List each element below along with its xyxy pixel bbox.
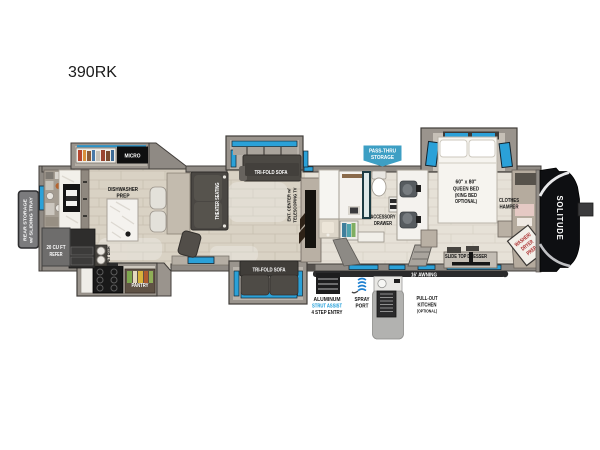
svg-text:HAMPER: HAMPER	[500, 205, 519, 211]
svg-text:w/ SLIDING TRAY: w/ SLIDING TRAY	[29, 196, 35, 244]
svg-text:16' AWNING: 16' AWNING	[411, 273, 437, 279]
svg-text:DRAWER: DRAWER	[374, 221, 392, 227]
svg-text:CLOTHES: CLOTHES	[499, 198, 519, 204]
svg-text:20 CU FT: 20 CU FT	[47, 245, 66, 251]
svg-text:TELESCOPING TV: TELESCOPING TV	[293, 187, 299, 223]
svg-text:SOLITUDE: SOLITUDE	[555, 195, 564, 240]
svg-text:SPRAY: SPRAY	[355, 297, 370, 303]
svg-text:(OPTIONAL): (OPTIONAL)	[417, 309, 437, 314]
svg-text:THEATER SEATING: THEATER SEATING	[215, 183, 221, 220]
svg-text:60" x 80": 60" x 80"	[456, 180, 477, 186]
svg-text:PET DISH: PET DISH	[106, 246, 111, 264]
svg-text:PANTRY: PANTRY	[132, 283, 149, 289]
svg-text:REAR STORAGE: REAR STORAGE	[23, 198, 29, 241]
svg-text:4 STEP ENTRY: 4 STEP ENTRY	[312, 310, 343, 316]
svg-text:390RK: 390RK	[68, 64, 117, 81]
svg-text:QUEEN BED: QUEEN BED	[453, 187, 479, 193]
svg-text:SLIDE TOP DRESSER: SLIDE TOP DRESSER	[445, 254, 487, 260]
svg-text:MICRO: MICRO	[125, 154, 141, 160]
svg-text:ENT. CENTER w/: ENT. CENTER w/	[287, 188, 293, 222]
svg-text:OPTIONAL): OPTIONAL)	[455, 199, 477, 205]
svg-text:PULL-OUT: PULL-OUT	[417, 296, 439, 302]
svg-text:PORT: PORT	[356, 304, 370, 310]
svg-text:TRI-FOLD SOFA: TRI-FOLD SOFA	[255, 170, 288, 176]
svg-text:TRI-FOLD SOFA: TRI-FOLD SOFA	[253, 268, 286, 274]
svg-text:STORAGE: STORAGE	[371, 155, 394, 161]
svg-text:ACCESSORY: ACCESSORY	[371, 215, 396, 221]
svg-text:STRUT ASSIST: STRUT ASSIST	[312, 304, 343, 310]
svg-text:ALUMINUM: ALUMINUM	[314, 297, 341, 303]
svg-text:DISHWASHER: DISHWASHER	[108, 187, 138, 193]
svg-text:REFER: REFER	[50, 252, 63, 258]
svg-text:PASS-THRU: PASS-THRU	[369, 149, 396, 155]
